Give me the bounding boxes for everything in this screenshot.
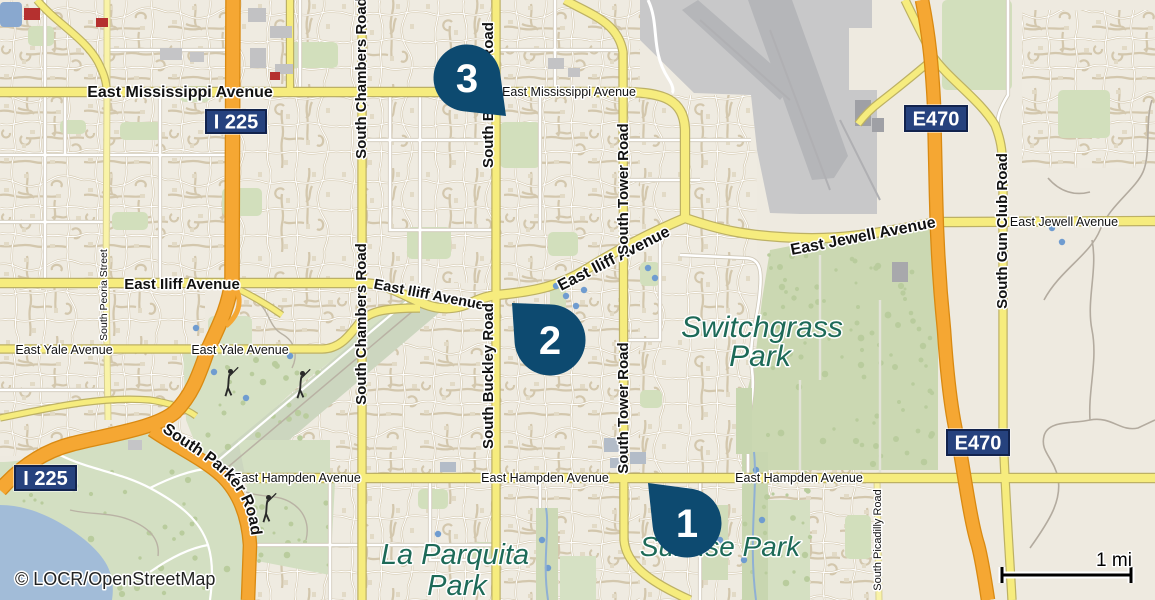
svg-text:East Mississippi Avenue: East Mississippi Avenue — [502, 85, 636, 99]
svg-text:E470: E470 — [913, 109, 960, 131]
svg-text:© LOCR/OpenStreetMap: © LOCR/OpenStreetMap — [15, 569, 215, 589]
svg-text:South Buckley Road: South Buckley Road — [480, 303, 497, 449]
svg-text:La Parquita: La Parquita — [381, 539, 529, 571]
svg-text:I 225: I 225 — [23, 468, 67, 490]
svg-text:South Tower Road: South Tower Road — [615, 123, 632, 254]
svg-text:East Mississippi Avenue: East Mississippi Avenue — [87, 84, 273, 101]
svg-text:E470: E470 — [955, 433, 1002, 455]
svg-text:I 225: I 225 — [214, 112, 258, 134]
svg-text:East Iliff Avenue: East Iliff Avenue — [124, 276, 240, 293]
svg-text:Park: Park — [427, 570, 488, 600]
svg-text:East Yale Avenue: East Yale Avenue — [191, 343, 288, 357]
svg-text:3: 3 — [456, 57, 478, 101]
svg-text:1: 1 — [676, 502, 698, 546]
svg-text:South Chambers Road: South Chambers Road — [353, 243, 370, 405]
svg-text:1 mi: 1 mi — [1096, 550, 1132, 571]
svg-text:South Tower Road: South Tower Road — [615, 342, 632, 473]
svg-text:2: 2 — [539, 319, 561, 363]
svg-text:East Hampden Avenue: East Hampden Avenue — [481, 471, 609, 485]
svg-text:East Hampden Avenue: East Hampden Avenue — [735, 471, 863, 485]
svg-text:South Gun Club Road: South Gun Club Road — [994, 153, 1011, 309]
svg-text:Park: Park — [729, 340, 793, 373]
svg-text:South Chambers Road: South Chambers Road — [353, 0, 370, 159]
svg-text:South Picadilly Road: South Picadilly Road — [872, 489, 884, 591]
svg-text:East Jewell Avenue: East Jewell Avenue — [1010, 215, 1118, 229]
svg-text:East Yale Avenue: East Yale Avenue — [15, 343, 112, 357]
svg-text:South Peoria Street: South Peoria Street — [98, 249, 110, 341]
svg-text:East Hampden Avenue: East Hampden Avenue — [233, 471, 361, 485]
